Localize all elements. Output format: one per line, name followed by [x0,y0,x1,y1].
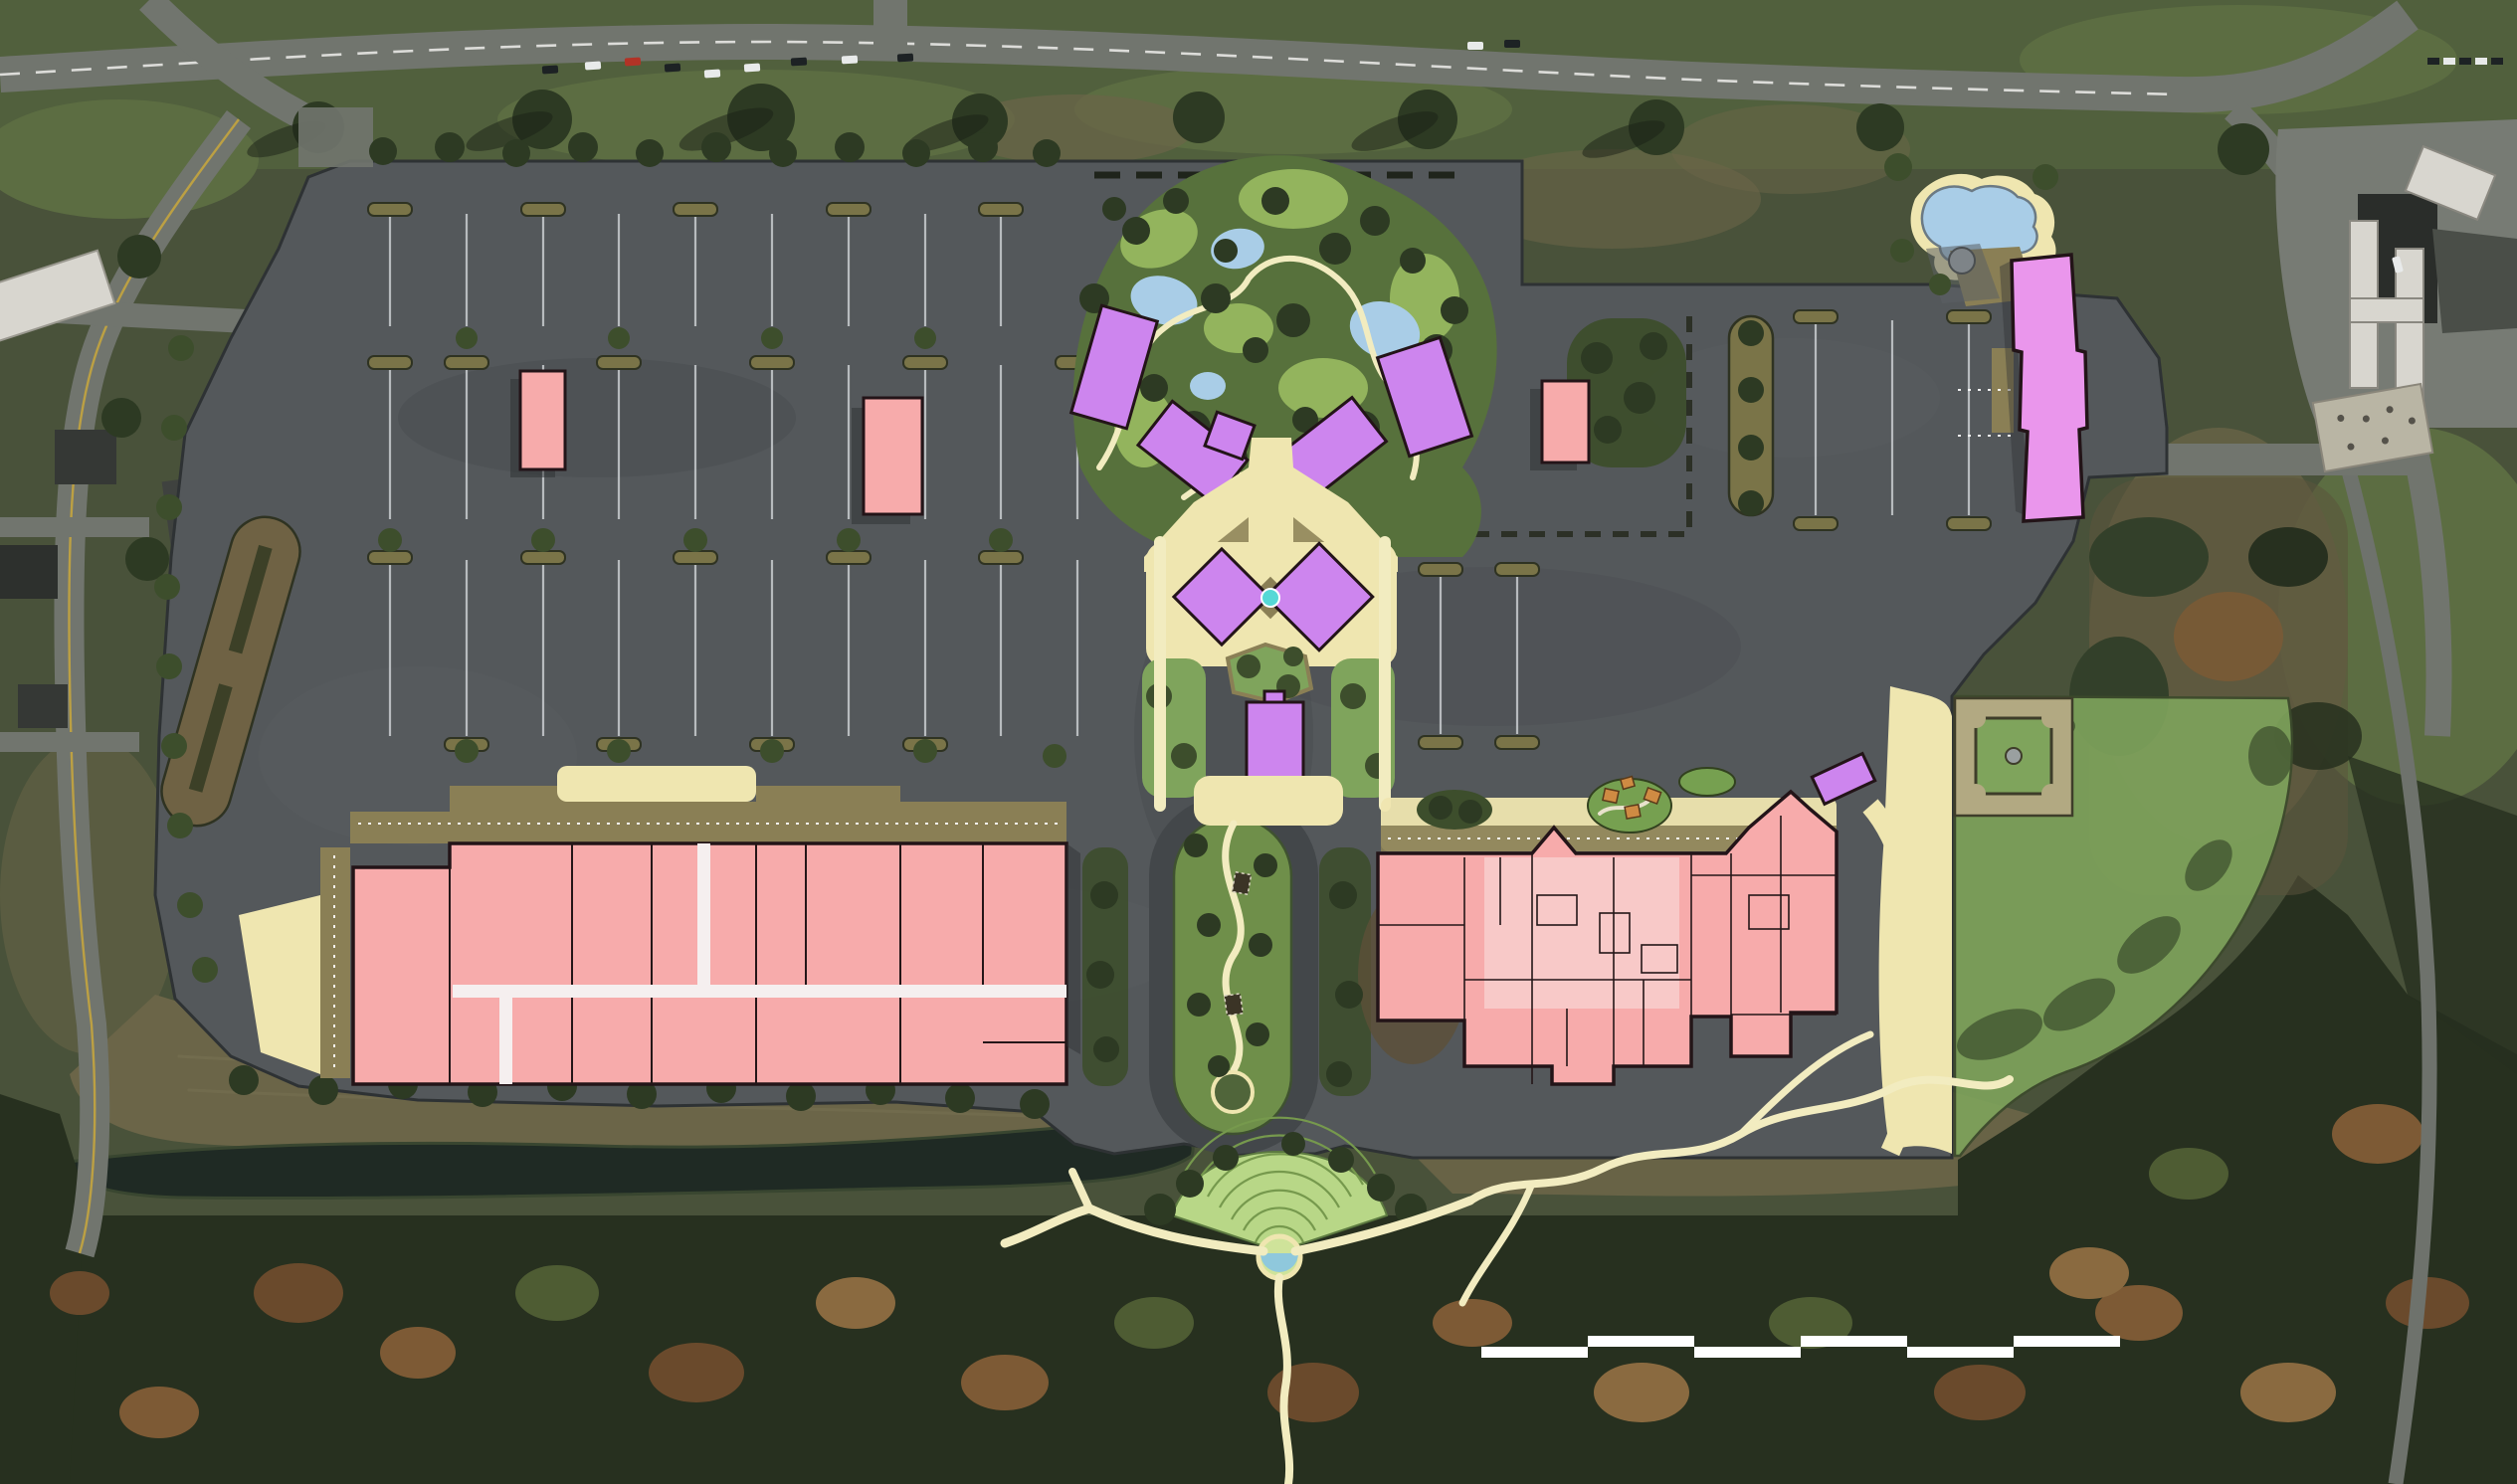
spine-head-plaza [1194,776,1343,826]
site-plan-canvas [0,0,2517,1484]
top-road-stub [873,0,907,58]
complex-north-islands [1417,790,1492,830]
scale-segment [1481,1347,1588,1358]
scale-segment [1907,1347,2014,1358]
scale-segment [1694,1347,1801,1358]
spine-terminus-circle [1213,1072,1253,1112]
offsite-car-row [2427,58,2503,65]
complex-hall-light [1484,857,1679,1009]
scale-segment [1801,1336,1907,1347]
scale-segment [2014,1336,2120,1347]
green-south-building [1247,691,1303,778]
front-plaza-pocket [557,766,756,802]
parterre-fountain [2006,748,2022,764]
west-side-walk [320,847,350,1078]
village-green [1142,542,1397,806]
cottage-garden-cluster [1071,155,1497,572]
outparcel-c [1542,381,1589,463]
entrance-apron [298,107,373,167]
outparcel-a [520,371,565,469]
amphitheater-stage [1258,1236,1300,1278]
pool-spa-circle [1949,248,1975,274]
retail-shadow-east [1066,843,1080,1054]
parterre-garden [1955,698,2072,816]
scale-segment [1588,1336,1694,1347]
green-fountain [1261,589,1279,607]
outparcel-b [864,398,922,514]
aerial-masterplan [0,0,2517,1484]
left-retail-building-group [239,766,1080,1084]
